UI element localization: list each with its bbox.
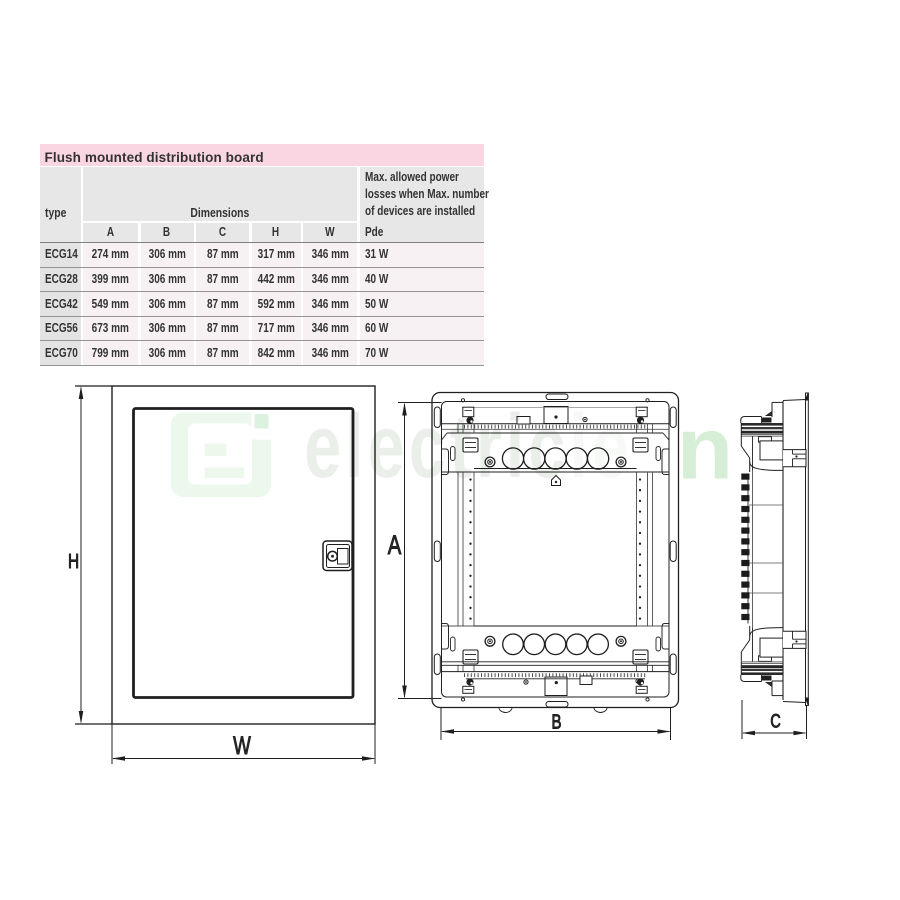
svg-text:C: C (770, 711, 780, 732)
svg-text:W: W (233, 731, 251, 759)
svg-text:A: A (388, 530, 402, 561)
svg-text:B: B (552, 710, 562, 733)
svg-text:n: n (677, 399, 733, 498)
svg-text:H: H (68, 550, 79, 573)
svg-text:electricie: electricie (304, 395, 633, 496)
